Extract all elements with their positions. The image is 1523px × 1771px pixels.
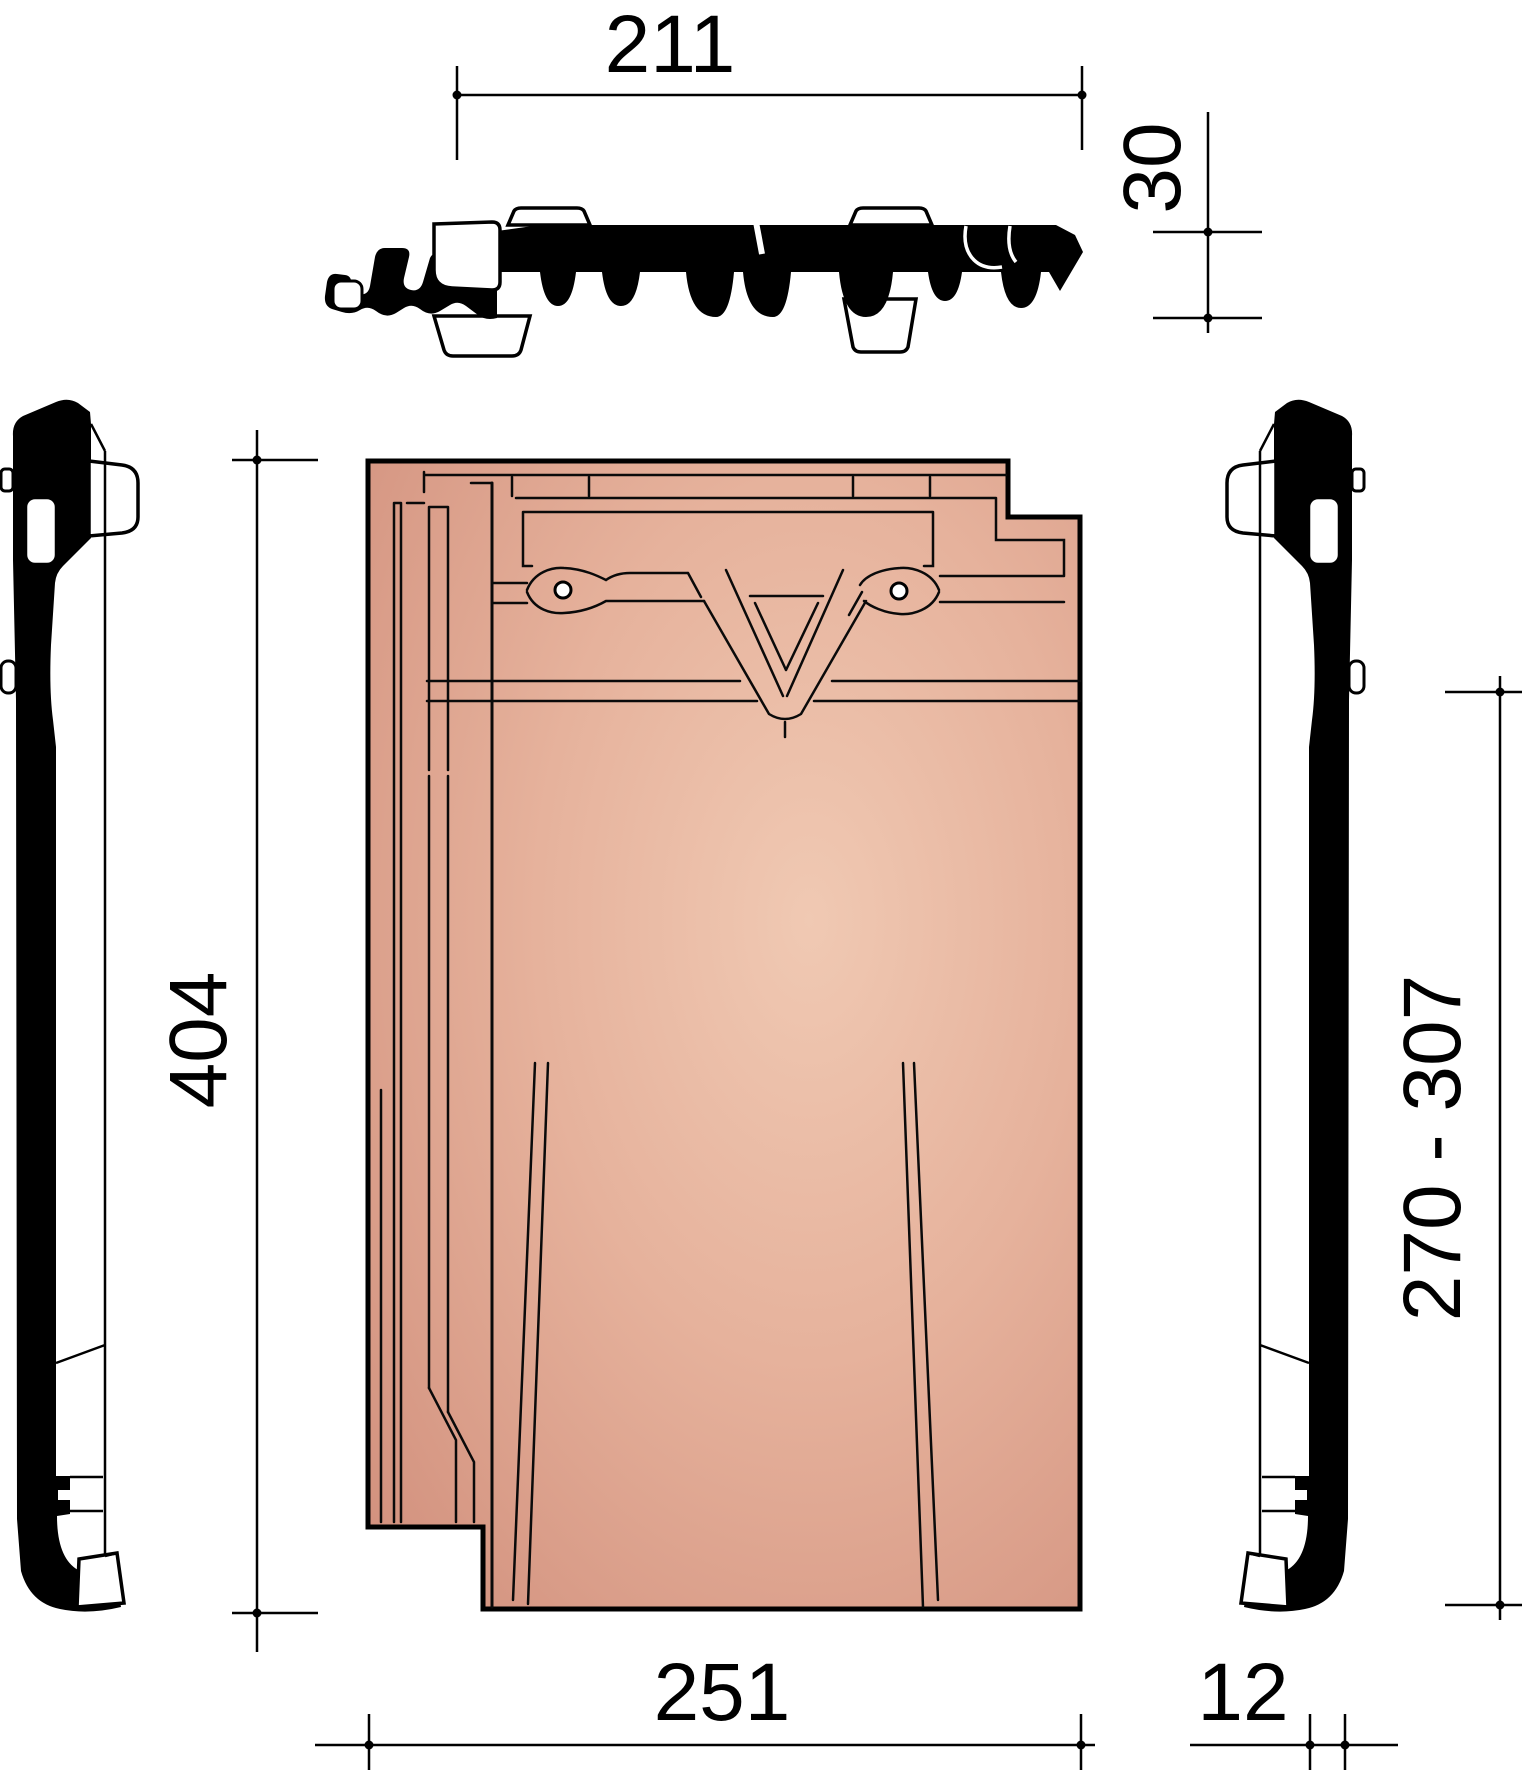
right-side-view <box>1227 400 1364 1612</box>
nail-hole-left <box>555 582 571 598</box>
nail-hole-right <box>891 583 907 599</box>
dimension-label-profile-height: 30 <box>1112 88 1202 248</box>
technical-drawing-page: 211 30 404 270 - 307 251 12 <box>0 0 1523 1771</box>
dimension-label-tile-width: 251 <box>622 1652 822 1734</box>
dimension-label-tile-length: 404 <box>158 930 248 1150</box>
dimension-label-covering-width: 211 <box>560 4 780 86</box>
tile-outline <box>368 461 1080 1609</box>
top-cross-section-view <box>325 208 1083 356</box>
lock-hook-outline <box>434 222 500 290</box>
tile-drawing-canvas <box>0 0 1523 1771</box>
front-view <box>368 461 1080 1609</box>
top-tab-left <box>508 208 590 225</box>
profile-band <box>497 225 1083 317</box>
dimension-label-batten-distance: 270 - 307 <box>1392 938 1482 1358</box>
left-side-view <box>1 400 138 1612</box>
under-rib-left <box>434 316 530 356</box>
dimension-label-side-thickness: 12 <box>1163 1652 1323 1734</box>
top-tab-right <box>850 208 932 225</box>
